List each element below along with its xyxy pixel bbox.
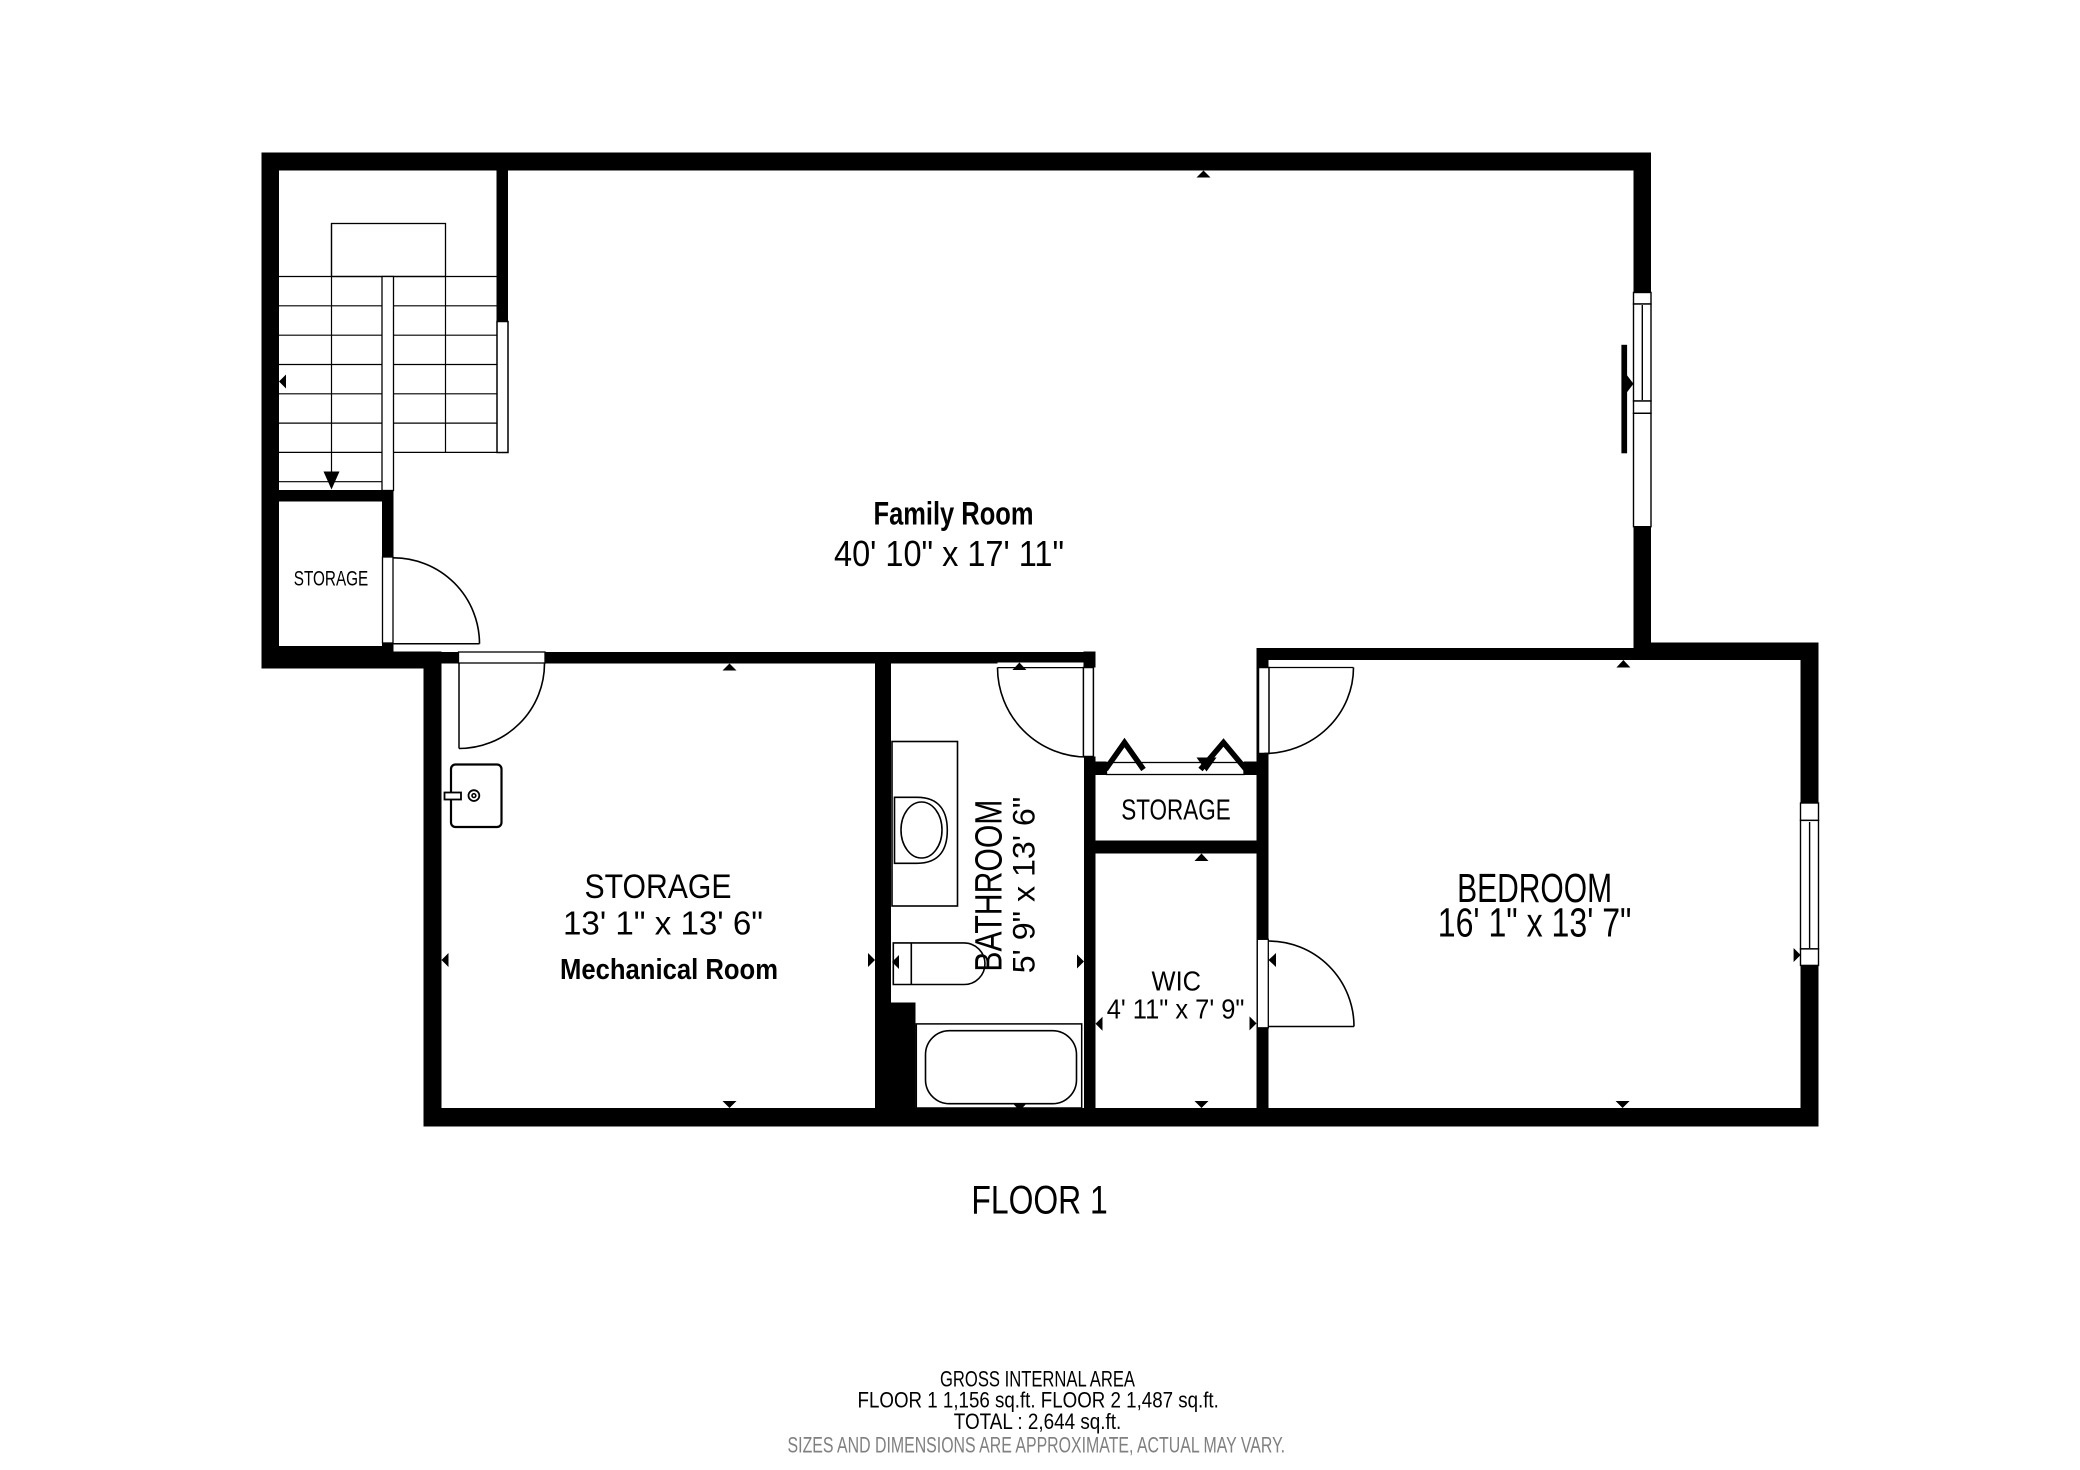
svg-text:BATHROOM: BATHROOM xyxy=(969,800,1011,972)
svg-text:STORAGE: STORAGE xyxy=(1121,795,1231,827)
svg-text:Family Room: Family Room xyxy=(874,496,1034,532)
svg-text:WIC: WIC xyxy=(1152,966,1202,997)
svg-text:STORAGE: STORAGE xyxy=(585,868,732,906)
svg-text:Mechanical Room: Mechanical Room xyxy=(560,954,778,986)
svg-text:13' 1" x 13' 6": 13' 1" x 13' 6" xyxy=(563,905,763,942)
svg-text:5' 9" x 13' 6": 5' 9" x 13' 6" xyxy=(1006,797,1042,974)
svg-text:FLOOR 1: FLOOR 1 xyxy=(971,1179,1107,1223)
svg-text:4' 11" x 7' 9": 4' 11" x 7' 9" xyxy=(1107,993,1245,1024)
svg-text:40' 10" x 17' 11": 40' 10" x 17' 11" xyxy=(834,533,1064,574)
svg-text:TOTAL : 2,644 sq.ft.: TOTAL : 2,644 sq.ft. xyxy=(954,1409,1122,1434)
svg-text:STORAGE: STORAGE xyxy=(294,568,369,591)
svg-text:SIZES AND DIMENSIONS ARE APPRO: SIZES AND DIMENSIONS ARE APPROXIMATE, AC… xyxy=(788,1433,1286,1458)
svg-text:16' 1" x 13' 7": 16' 1" x 13' 7" xyxy=(1438,899,1632,945)
